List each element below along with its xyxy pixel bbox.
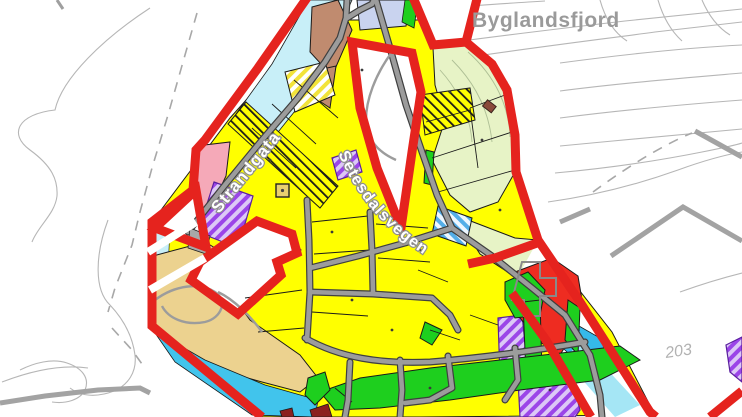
- cabin-square-icon: [276, 184, 289, 197]
- place-label: Byglandsfjord: [472, 9, 620, 32]
- map-canvas[interactable]: Byglandsfjord Strandgata Setesdalsvegen …: [0, 0, 742, 417]
